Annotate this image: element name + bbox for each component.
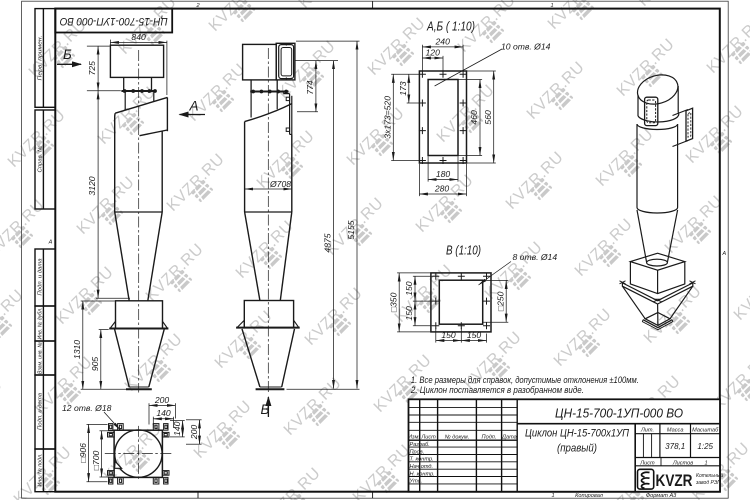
svg-text:□906: □906: [78, 443, 88, 463]
svg-text:Перв. примен.: Перв. примен.: [37, 36, 43, 81]
svg-text:Формат А3: Формат А3: [646, 493, 677, 499]
svg-text:Изм.: Изм.: [408, 435, 420, 441]
svg-text:140: 140: [172, 421, 182, 436]
svg-text:ЦН-15-700-1УП-000 ВО: ЦН-15-700-1УП-000 ВО: [59, 15, 167, 27]
svg-text:Инв. № подл.: Инв. № подл.: [37, 454, 43, 487]
svg-text:150: 150: [404, 281, 414, 296]
svg-text:А,Б ( 1:10): А,Б ( 1:10): [426, 20, 475, 34]
svg-text:Лист: Лист: [639, 460, 655, 466]
svg-text:12 отв. Ø18: 12 отв. Ø18: [62, 403, 112, 413]
svg-text:150: 150: [404, 306, 414, 321]
svg-text:Нач.отд.: Нач.отд.: [410, 464, 434, 470]
svg-text:140: 140: [156, 408, 171, 418]
svg-text:В (1:10): В (1:10): [446, 244, 481, 258]
svg-text:905: 905: [90, 357, 100, 372]
svg-text:№ докум.: № докум.: [445, 435, 470, 441]
svg-text:завод РЭП: завод РЭП: [695, 480, 721, 486]
svg-text:2. Циклон поставляется в разоб: 2. Циклон поставляется в разобранном вид…: [410, 384, 584, 395]
svg-text:5155: 5155: [346, 220, 356, 239]
svg-text:560: 560: [483, 110, 493, 125]
svg-text:Циклон ЦН-15-700х1УП: Циклон ЦН-15-700х1УП: [525, 428, 629, 440]
svg-text:Масштаб: Масштаб: [692, 428, 719, 434]
svg-text:Н. контр.: Н. контр.: [410, 471, 435, 477]
svg-text:8 отв. Ø14: 8 отв. Ø14: [513, 252, 558, 262]
svg-text:Листов: Листов: [672, 460, 693, 466]
svg-text:3x173=520: 3x173=520: [382, 96, 392, 139]
svg-text:378,1: 378,1: [665, 442, 685, 451]
svg-text:□350: □350: [388, 292, 398, 312]
svg-text:120: 120: [426, 47, 441, 57]
svg-text:173: 173: [398, 81, 408, 96]
svg-text:Подп. и дата: Подп. и дата: [37, 259, 43, 296]
svg-text:Пров.: Пров.: [410, 449, 425, 455]
svg-text:Т. контр.: Т. контр.: [410, 457, 434, 463]
svg-text:200: 200: [154, 395, 170, 405]
svg-text:А: А: [48, 240, 53, 246]
svg-text:240: 240: [435, 36, 451, 46]
svg-text:KVZR: KVZR: [656, 472, 693, 490]
svg-text:Разраб.: Разраб.: [410, 442, 430, 448]
svg-text:180: 180: [436, 169, 451, 179]
svg-text:Подп. и дата: Подп. и дата: [37, 393, 43, 430]
svg-text:150: 150: [441, 330, 456, 340]
svg-text:150: 150: [467, 330, 482, 340]
svg-text:460: 460: [469, 110, 479, 125]
svg-text:А: А: [189, 99, 199, 114]
svg-text:Справ. №: Справ. №: [37, 146, 43, 173]
svg-text:Копировал: Копировал: [575, 493, 604, 499]
svg-text:Подп.: Подп.: [482, 435, 497, 441]
svg-text:280: 280: [434, 184, 450, 194]
svg-text:Ø708: Ø708: [269, 179, 291, 189]
svg-text:В: В: [261, 402, 270, 417]
svg-text:3120: 3120: [87, 176, 97, 195]
svg-text:1: 1: [704, 460, 707, 466]
svg-text:1: 1: [550, 3, 553, 9]
svg-text:Утв.: Утв.: [409, 479, 423, 485]
svg-text:200: 200: [189, 425, 199, 441]
svg-text:□700: □700: [91, 451, 101, 471]
svg-text:Лист: Лист: [420, 435, 436, 441]
svg-text:Масса: Масса: [667, 428, 684, 434]
svg-text:Лит.: Лит.: [640, 428, 654, 434]
svg-text:Котельный: Котельный: [696, 472, 723, 479]
svg-text:1:25: 1:25: [697, 442, 713, 451]
svg-text:10 отв. Ø14: 10 отв. Ø14: [501, 42, 551, 52]
svg-text:840: 840: [131, 32, 146, 42]
svg-text:4875: 4875: [323, 233, 333, 252]
svg-text:Взам. инв. №: Взам. инв. №: [37, 342, 43, 374]
svg-text:774: 774: [305, 80, 315, 95]
svg-text:□250: □250: [495, 291, 505, 311]
svg-text:725: 725: [87, 61, 97, 76]
svg-text:А: А: [721, 251, 726, 257]
svg-text:Инв. № дубл.: Инв. № дубл.: [37, 308, 43, 340]
svg-text:(правый): (правый): [557, 443, 597, 455]
svg-text:Дата: Дата: [501, 435, 517, 441]
svg-text:Б: Б: [63, 47, 72, 62]
svg-text:ЦН-15-700-1УП-000 ВО: ЦН-15-700-1УП-000 ВО: [555, 406, 683, 421]
svg-text:1310: 1310: [72, 340, 82, 359]
svg-text:1: 1: [551, 493, 554, 499]
